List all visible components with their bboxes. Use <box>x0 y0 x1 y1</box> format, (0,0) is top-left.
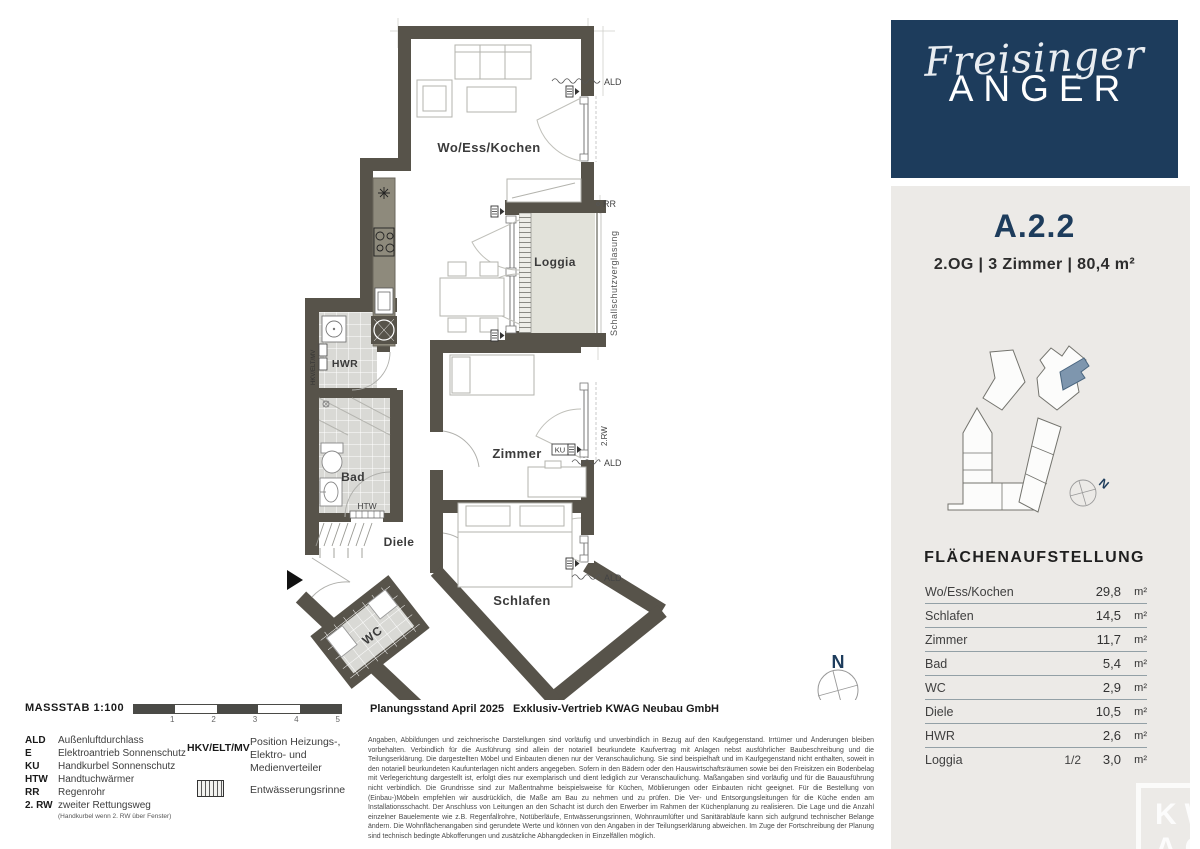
row-value: 14,5 <box>1081 608 1121 623</box>
sideboard <box>507 179 581 202</box>
site-plan: N <box>905 338 1185 538</box>
coffee-table <box>467 87 516 112</box>
schallschutz-label: Schallschutzverglasung <box>609 230 619 336</box>
row-label: Diele <box>925 705 1051 719</box>
legend-text: Handtuchwärmer <box>58 773 134 786</box>
scale-bar <box>133 704 342 714</box>
scale-ticks: 1 2 3 4 5 <box>133 715 342 724</box>
row-value: 5,4 <box>1081 656 1121 671</box>
scale-tick: 2 <box>174 715 215 724</box>
scale-tick: 3 <box>216 715 257 724</box>
wc-room: WC <box>318 583 422 681</box>
site-building-tower <box>963 408 992 483</box>
table-row: Zimmer 11,7 m² <box>925 628 1147 652</box>
row-unit: m² <box>1121 706 1147 718</box>
kitchen-sink-icon <box>375 288 393 314</box>
legend-text: Elektroantrieb Sonnenschutz <box>58 747 186 760</box>
row-label: Schlafen <box>925 609 1051 623</box>
legend-row: RR Regenrohr <box>25 786 186 799</box>
row-label: Wo/Ess/Kochen <box>925 585 1051 599</box>
scale-title: MASSSTAB 1:100 <box>25 702 124 714</box>
row-label: Bad <box>925 657 1051 671</box>
row-fraction: 1/2 <box>1051 753 1081 767</box>
hkv-line: Medienverteiler <box>250 762 340 775</box>
north-compass: N <box>818 652 858 700</box>
kitchen-counter <box>371 178 397 346</box>
room-label-zimmer: Zimmer <box>492 446 541 461</box>
htw-label: HTW <box>357 501 376 511</box>
sofa <box>455 45 531 79</box>
e-symbol-icon <box>566 86 580 97</box>
table-row: WC 2,9 m² <box>925 676 1147 700</box>
scale-segment <box>217 705 258 713</box>
desk <box>528 461 586 497</box>
table-row: Diele 10,5 m² <box>925 700 1147 724</box>
room-label-loggia: Loggia <box>534 255 576 269</box>
row-unit: m² <box>1121 634 1147 646</box>
floorplan-drawing: WC <box>0 0 880 700</box>
scale-segment <box>134 705 175 713</box>
room-label-diele: Diele <box>384 535 415 549</box>
ku-label: KU <box>555 446 565 455</box>
scale-segment <box>300 705 341 713</box>
wardrobe-hatching <box>316 523 372 558</box>
room-label-living: Wo/Ess/Kochen <box>437 140 540 155</box>
e-symbol-icon <box>491 206 505 217</box>
table-row: Bad 5,4 m² <box>925 652 1147 676</box>
unit-id: A.2.2 <box>891 208 1178 245</box>
legend-text: zweiter Rettungsweg <box>58 799 151 812</box>
abbreviation-legend: ALD Außenluftdurchlass E Elektroantrieb … <box>25 734 186 821</box>
room-label-bad: Bad <box>341 470 365 484</box>
scale-tick: 5 <box>299 715 340 724</box>
row-unit: m² <box>1121 754 1147 766</box>
scale-tick: 4 <box>257 715 298 724</box>
legend-row: ALD Außenluftdurchlass <box>25 734 186 747</box>
hkv-line: Elektro- und <box>250 749 340 762</box>
watermark-line: KW <box>1155 798 1200 832</box>
legend-abbr: 2. RW <box>25 799 58 812</box>
towel-warmer-icon <box>350 511 384 518</box>
armchair <box>417 80 452 117</box>
hkv-line: Position Heizungs-, <box>250 736 340 749</box>
kwag-watermark: KW AG <box>1136 783 1200 849</box>
scale-segment <box>258 705 299 713</box>
site-building <box>983 350 1025 410</box>
legend-abbr: E <box>25 747 58 760</box>
legend-text: Regenrohr <box>58 786 105 799</box>
hkv-description: Position Heizungs-, Elektro- und Medienv… <box>250 736 340 775</box>
row-unit: m² <box>1121 658 1147 670</box>
legend-note: (Handkurbel wenn 2. RW über Fenster) <box>58 812 186 821</box>
room-label-hwr: HWR <box>332 358 358 370</box>
area-table-title: FLÄCHENAUFSTELLUNG <box>891 549 1178 567</box>
rr-label: RR <box>603 199 616 209</box>
unit-meta: 2.OG | 3 Zimmer | 80,4 m² <box>891 256 1178 274</box>
ald-label-living: ALD <box>604 77 622 87</box>
legend-text: Handkurbel Sonnenschutz <box>58 760 175 773</box>
floorplan-page: WC <box>0 0 1200 849</box>
row-label: Zimmer <box>925 633 1051 647</box>
legend-abbr: KU <box>25 760 58 773</box>
drainage-channel-label: Entwässerungsrinne <box>250 784 345 796</box>
legend-text: Außenluftdurchlass <box>58 734 144 747</box>
row-unit: m² <box>1121 730 1147 742</box>
site-building-bar <box>1019 418 1061 512</box>
ald-label-schlafen: ALD <box>604 573 622 583</box>
loggia-glazing <box>597 213 601 333</box>
site-north-label: N <box>1096 476 1112 492</box>
row-unit: m² <box>1121 682 1147 694</box>
legend-abbr: RR <box>25 786 58 799</box>
washbasin-icon <box>320 478 342 506</box>
hkv-abbr: HKV/ELT/MV <box>187 742 250 754</box>
loggia-floor <box>531 213 595 333</box>
room-label-schlafen: Schlafen <box>493 593 550 608</box>
entrance-door-arc <box>312 558 350 597</box>
scale-segment <box>175 705 216 713</box>
area-table: Wo/Ess/Kochen 29,8 m² Schlafen 14,5 m² Z… <box>925 580 1147 771</box>
table-row: Loggia 1/2 3,0 m² <box>925 748 1147 771</box>
row-label: HWR <box>925 729 1051 743</box>
zimmer-door-arc <box>443 431 479 467</box>
table-row: Schlafen 14,5 m² <box>925 604 1147 628</box>
dining-table <box>440 262 504 332</box>
legend-abbr: ALD <box>25 734 58 747</box>
sales-contact: Exklusiv-Vertrieb KWAG Neubau GmbH <box>513 703 719 715</box>
living-window <box>537 96 596 162</box>
hkv-plan-label: HKV/ELT/MV <box>311 350 317 385</box>
row-value: 2,9 <box>1081 680 1121 695</box>
toilet-icon <box>321 443 343 473</box>
double-bed <box>458 503 572 587</box>
round-sink-icon <box>371 316 397 344</box>
row-value: 11,7 <box>1081 632 1121 647</box>
row-unit: m² <box>1121 610 1147 622</box>
legal-disclaimer: Angaben, Abbildungen und zeichnerische D… <box>368 736 874 842</box>
scale-tick: 1 <box>133 715 174 724</box>
legend-row: E Elektroantrieb Sonnenschutz <box>25 747 186 760</box>
ald-label-zimmer: ALD <box>604 458 622 468</box>
watermark-line: AG <box>1155 832 1200 849</box>
brand-logo: Freisinger ANGER <box>891 20 1178 178</box>
site-compass: N <box>1070 476 1112 506</box>
row-value: 29,8 <box>1081 584 1121 599</box>
zimmer-bed <box>450 355 534 395</box>
row-unit: m² <box>1121 586 1147 598</box>
row-label: WC <box>925 681 1051 695</box>
washing-machine-icon <box>322 316 346 342</box>
e-symbol-icon <box>491 330 505 341</box>
entrance-arrow-icon <box>287 570 303 590</box>
table-row: Wo/Ess/Kochen 29,8 m² <box>925 580 1147 604</box>
legend-row: 2. RW zweiter Rettungsweg <box>25 799 186 812</box>
planning-status: Planungsstand April 2025 <box>370 703 504 715</box>
row-value: 10,5 <box>1081 704 1121 719</box>
legend-row: HTW Handtuchwärmer <box>25 773 186 786</box>
row-label: Loggia <box>925 753 1051 767</box>
north-label: N <box>832 652 845 672</box>
rw2-label: 2.RW <box>600 426 609 446</box>
table-row: HWR 2,6 m² <box>925 724 1147 748</box>
row-value: 3,0 <box>1081 752 1121 767</box>
row-value: 2,6 <box>1081 728 1121 743</box>
drainage-channel-icon <box>197 780 224 802</box>
legend-abbr: HTW <box>25 773 58 786</box>
legend-row: KU Handkurbel Sonnenschutz <box>25 760 186 773</box>
entwaesserungsrinne-strip <box>519 213 531 333</box>
